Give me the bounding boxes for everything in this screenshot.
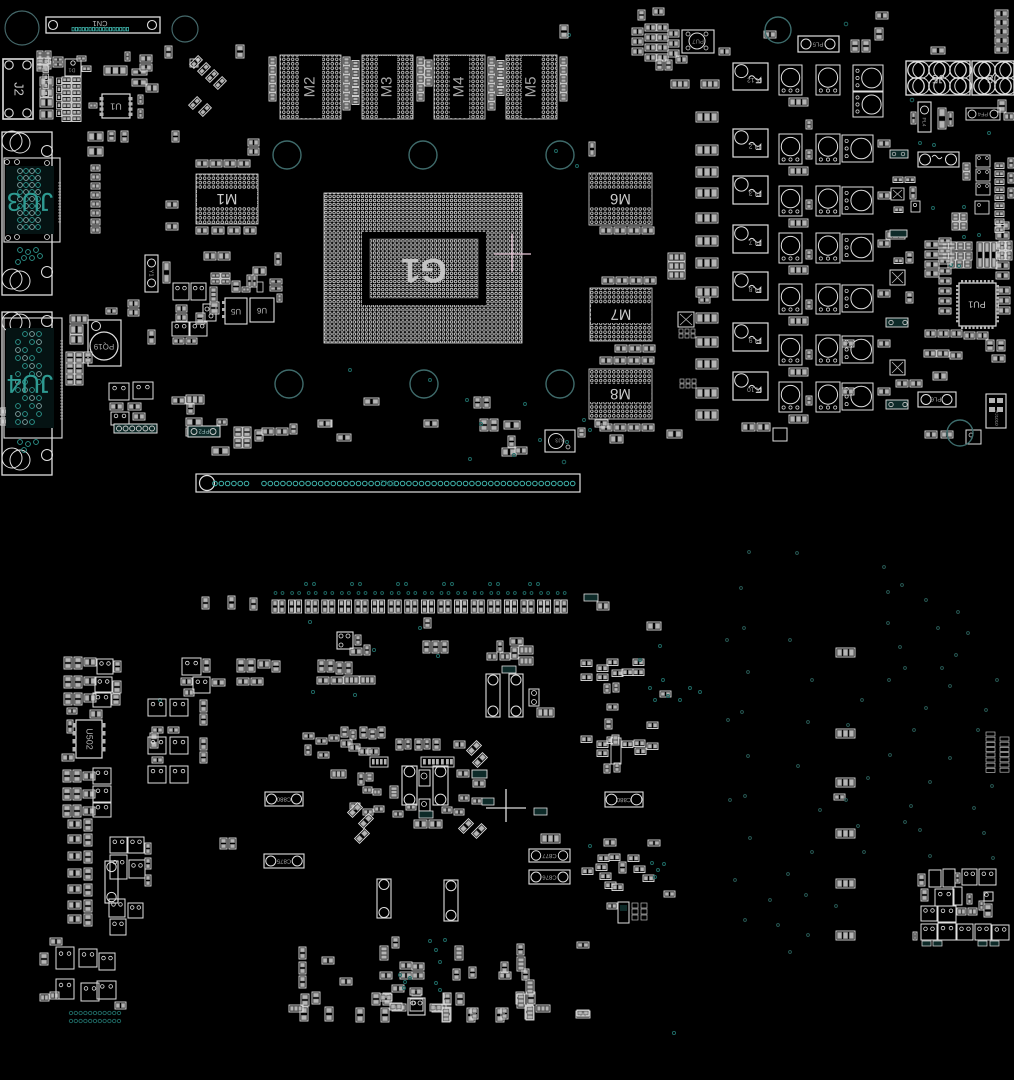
svg-text:C876: C876 — [542, 873, 557, 880]
svg-text:PL3: PL3 — [749, 190, 761, 197]
svg-text:C880: C880 — [276, 795, 291, 802]
svg-text:M3: M3 — [378, 77, 395, 98]
svg-text:J5: J5 — [931, 72, 944, 86]
svg-text:U5: U5 — [230, 307, 241, 316]
svg-text:Y1: Y1 — [147, 269, 154, 277]
svg-text:PL9: PL9 — [749, 337, 761, 344]
svg-text:PL5: PL5 — [812, 40, 823, 47]
svg-text:J8: J8 — [986, 72, 999, 86]
svg-text:J2: J2 — [12, 82, 27, 96]
svg-text:M6: M6 — [610, 190, 631, 207]
svg-text:BJ3: BJ3 — [555, 437, 564, 443]
svg-text:M2: M2 — [301, 77, 318, 98]
svg-text:CN2: CN2 — [379, 478, 396, 487]
svg-text:PU7: PU7 — [692, 37, 704, 44]
svg-text:CN1: CN1 — [92, 19, 107, 28]
svg-text:M5: M5 — [522, 77, 539, 98]
svg-text:PL7: PL7 — [749, 239, 761, 246]
svg-text:PL10: PL10 — [747, 386, 763, 393]
svg-text:M4: M4 — [450, 77, 467, 98]
svg-text:G1: G1 — [401, 251, 446, 289]
svg-text:JU3: JU3 — [7, 187, 53, 217]
svg-text:PJ1010: PJ1010 — [994, 410, 999, 426]
svg-text:M8: M8 — [610, 385, 631, 402]
svg-text:U6: U6 — [256, 306, 267, 315]
svg-text:U502: U502 — [85, 728, 95, 750]
svg-text:PU1: PU1 — [968, 300, 986, 310]
svg-text:PL12: PL12 — [747, 76, 763, 83]
svg-text:M1: M1 — [217, 190, 238, 207]
svg-text:PF4: PF4 — [978, 111, 988, 117]
svg-text:PL8: PL8 — [749, 286, 761, 293]
svg-text:C880: C880 — [616, 796, 631, 803]
svg-text:C877: C877 — [542, 852, 557, 859]
svg-text:D1: D1 — [68, 67, 75, 73]
svg-text:M7: M7 — [611, 305, 632, 322]
svg-text:C875: C875 — [276, 857, 291, 864]
svg-text:PL6: PL6 — [930, 395, 941, 402]
svg-text:PL2: PL2 — [749, 143, 761, 150]
svg-text:PQ19: PQ19 — [93, 342, 114, 351]
svg-text:U1: U1 — [110, 102, 122, 112]
svg-text:PL4: PL4 — [921, 118, 927, 127]
svg-text:PF2: PF2 — [198, 427, 210, 434]
svg-text:JU4: JU4 — [7, 369, 53, 399]
